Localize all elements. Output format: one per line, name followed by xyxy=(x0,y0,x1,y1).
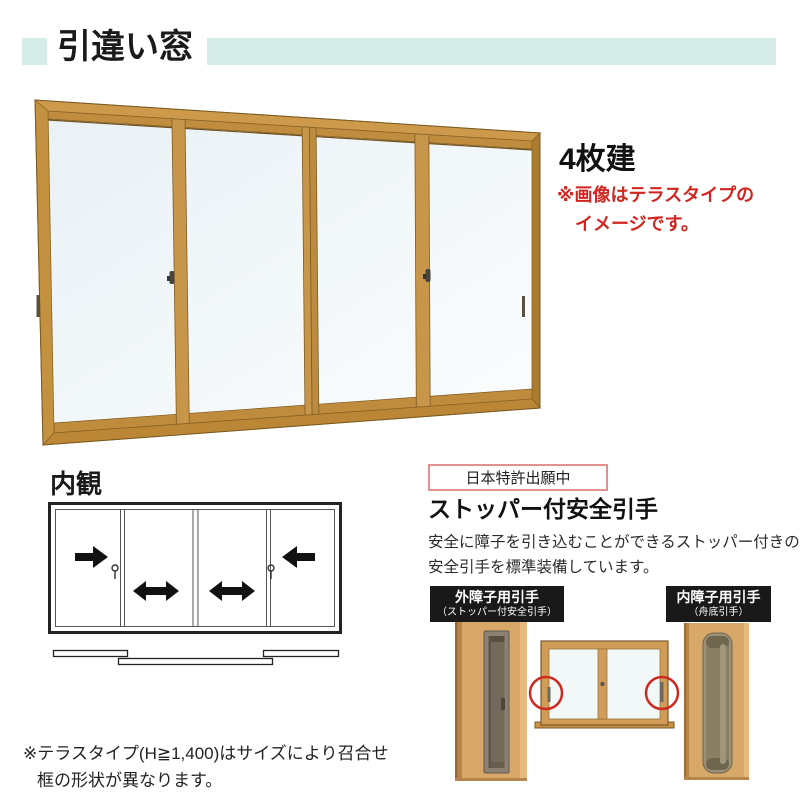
outer-handle-label-line2: （ストッパー付安全引手） xyxy=(437,606,557,619)
feature-title: ストッパー付安全引手 xyxy=(428,490,658,524)
inner-handle-image xyxy=(680,620,752,790)
mini-crescent-lock-icon xyxy=(600,682,604,686)
page-title: 引違い窓 xyxy=(57,28,193,66)
mini-pull-handle xyxy=(548,687,551,702)
mini-pull-handle xyxy=(660,682,664,702)
outer-handle-label: 外障子用引手 （ストッパー付安全引手） xyxy=(430,586,564,622)
header-accent-square xyxy=(22,38,47,65)
footer-note-line1: ※テラスタイプ(H≧1,400)はサイズにより召合せ xyxy=(23,740,388,767)
patent-badge: 日本特許出願中 xyxy=(428,464,608,491)
header-accent-band xyxy=(207,38,776,65)
inner-handle-label-line1: 内障子用引手 xyxy=(677,589,761,606)
image-note: ※画像はテラスタイプの イメージです。 xyxy=(557,181,754,239)
flush-pull-handle xyxy=(484,631,509,773)
outer-handle-image xyxy=(452,620,530,785)
frame-pull-slot xyxy=(37,295,41,317)
inner-handle-label-line2: （舟底引手） xyxy=(689,606,749,619)
feature-description-line2: 安全引手を標準装備しています。 xyxy=(428,559,659,576)
image-note-line1: ※画像はテラスタイプの xyxy=(557,181,754,210)
feature-description: 安全に障子を引き込むことができるストッパー付きの 安全引手を標準装備しています。 xyxy=(428,530,800,580)
product-page: 引違い窓 xyxy=(0,0,800,800)
interior-view-diagram xyxy=(45,498,345,688)
footer-note-line2: 框の形状が異なります。 xyxy=(37,767,388,794)
footer-note: ※テラスタイプ(H≧1,400)はサイズにより召合せ 框の形状が異なります。 xyxy=(23,740,388,794)
inner-handle-label: 内障子用引手 （舟底引手） xyxy=(666,586,771,622)
image-note-line2: イメージです。 xyxy=(557,210,754,239)
window-right-jamb xyxy=(532,133,540,408)
diagram-outer-frame xyxy=(50,504,341,633)
window-glass xyxy=(48,119,532,423)
boat-bottom-pull-handle xyxy=(703,633,732,773)
outer-handle-label-line1: 外障子用引手 xyxy=(455,589,539,606)
feature-description-line1: 安全に障子を引き込むことができるストッパー付きの xyxy=(428,534,800,551)
interior-view-title: 内観 xyxy=(50,464,102,501)
handle-location-illustration xyxy=(527,635,683,735)
diagram-plan-view xyxy=(54,651,339,665)
panel-count-label: 4枚建 xyxy=(559,134,636,178)
frame-pull-slot xyxy=(522,296,525,317)
product-window-image xyxy=(20,85,560,460)
